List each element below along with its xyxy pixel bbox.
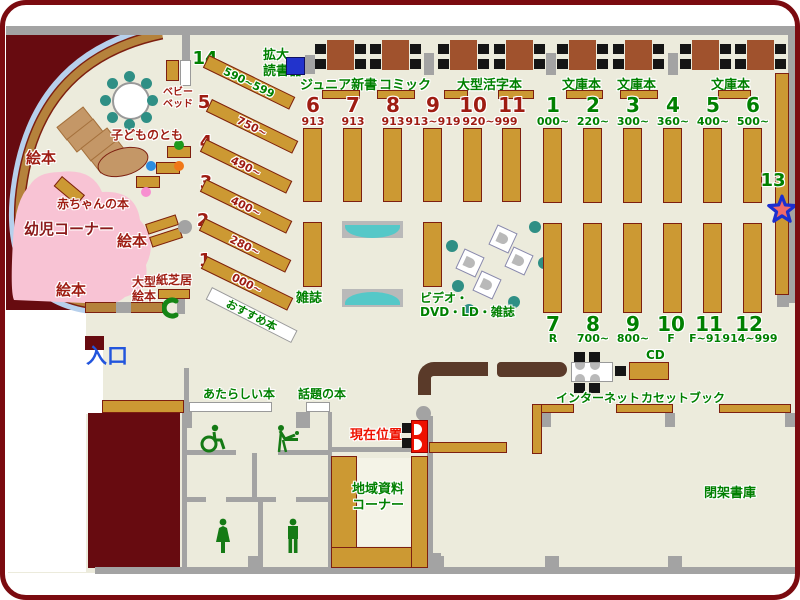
service-counter bbox=[418, 362, 488, 395]
reading-table bbox=[327, 40, 354, 70]
baby-change-icon bbox=[274, 424, 302, 454]
stack-number: 7 bbox=[332, 95, 374, 115]
shelf bbox=[532, 404, 542, 454]
pillar bbox=[424, 53, 434, 75]
pillar bbox=[546, 53, 556, 75]
cushion-blue bbox=[146, 161, 156, 171]
bookshelf bbox=[663, 223, 682, 313]
service-counter bbox=[497, 362, 567, 377]
stool bbox=[124, 71, 135, 82]
carrel-seat bbox=[495, 232, 509, 246]
bookshelf bbox=[343, 128, 362, 202]
phone-icon bbox=[162, 297, 180, 319]
video-shelf bbox=[423, 222, 442, 287]
topical-books-label: 話題の本 bbox=[298, 387, 346, 401]
chair bbox=[494, 44, 505, 54]
bookshelf bbox=[623, 128, 642, 203]
children-door bbox=[116, 302, 131, 313]
bookshelf bbox=[543, 223, 562, 313]
kodomo-no-tomo-label: 子どものとも bbox=[111, 128, 183, 142]
bookshelf bbox=[583, 128, 602, 203]
new-books-label: あたらしい本 bbox=[203, 387, 275, 401]
chair bbox=[589, 352, 600, 362]
magazines-label: 雑誌 bbox=[296, 291, 322, 307]
reading-table bbox=[747, 40, 774, 70]
bookshelf bbox=[743, 128, 762, 203]
pillar bbox=[668, 53, 678, 75]
bookshelf bbox=[383, 128, 402, 202]
chair bbox=[615, 366, 626, 376]
bookshelf bbox=[743, 223, 762, 313]
chair bbox=[478, 59, 489, 69]
stack-number: 12 bbox=[728, 314, 770, 334]
chair bbox=[775, 44, 786, 54]
baby-books-label: 赤ちゃんの本 bbox=[57, 197, 129, 211]
toilet-wall bbox=[226, 497, 276, 502]
local-materials-shelf bbox=[411, 456, 428, 568]
wall-pillar bbox=[668, 556, 682, 568]
stack-number: 10 bbox=[452, 95, 494, 115]
wall-top bbox=[6, 26, 795, 35]
baby-bed-label: ベビー ベッド bbox=[163, 87, 193, 111]
chair bbox=[720, 44, 731, 54]
wall-stub bbox=[541, 413, 551, 427]
stack-number: 6 bbox=[732, 95, 774, 115]
shelf bbox=[719, 404, 791, 413]
stack-number: 5 bbox=[692, 95, 734, 115]
stack-number: 11 bbox=[688, 314, 730, 334]
wall-stub bbox=[785, 413, 795, 427]
toilet-wall bbox=[296, 497, 332, 502]
bookshelf bbox=[423, 128, 442, 202]
reading-table bbox=[506, 40, 533, 70]
chair bbox=[315, 44, 326, 54]
wall-bottom bbox=[95, 567, 795, 574]
chair bbox=[680, 44, 691, 54]
stack-range: 913 bbox=[292, 116, 334, 127]
wall-local-top bbox=[332, 447, 411, 452]
chair bbox=[410, 59, 421, 69]
man-icon bbox=[283, 518, 303, 554]
wheelchair-icon bbox=[196, 424, 226, 454]
kamishibai-label: 紙芝居 bbox=[156, 273, 192, 287]
current-location-label: 現在位置 bbox=[350, 428, 402, 444]
chair bbox=[597, 59, 608, 69]
stool bbox=[147, 95, 158, 106]
chair bbox=[557, 59, 568, 69]
chair bbox=[402, 423, 411, 433]
carrel-chair bbox=[529, 221, 541, 233]
chair bbox=[613, 59, 624, 69]
carrel-seat bbox=[462, 256, 476, 270]
chair bbox=[315, 59, 326, 69]
chair bbox=[653, 59, 664, 69]
stack-number: 7 bbox=[532, 314, 574, 334]
chair bbox=[494, 59, 505, 69]
cushion-orange bbox=[174, 161, 184, 171]
toilet-wall bbox=[252, 453, 257, 500]
chair bbox=[735, 59, 746, 69]
pillar-dot bbox=[178, 220, 192, 234]
stack-number: 4 bbox=[652, 95, 694, 115]
library-floor-map: 拡大 読書器 ジュニア新書 コミック 大型活字本 文庫本 文庫本 文庫本 6 7… bbox=[0, 0, 800, 600]
stool bbox=[107, 78, 118, 89]
toilet-wall bbox=[258, 499, 263, 568]
new-books-shelf bbox=[189, 402, 272, 412]
chair bbox=[438, 59, 449, 69]
maroon-block bbox=[88, 413, 180, 568]
stack-number: 8 bbox=[372, 95, 414, 115]
toilet-wall-left bbox=[182, 412, 187, 568]
carrel-chair bbox=[446, 240, 458, 252]
reading-table bbox=[625, 40, 652, 70]
cd-label: CD bbox=[646, 348, 665, 362]
ehon-label: 絵本 bbox=[26, 149, 56, 167]
stack-range: 500~ bbox=[729, 116, 777, 127]
chair bbox=[438, 44, 449, 54]
ehon-label: 絵本 bbox=[117, 232, 147, 250]
seat bbox=[590, 374, 600, 381]
bookshelf bbox=[703, 128, 722, 203]
stool bbox=[107, 112, 118, 123]
baby-bed bbox=[180, 60, 191, 86]
cd-shelf bbox=[629, 362, 669, 380]
bookshelf bbox=[463, 128, 482, 202]
ogata-ehon-label: 大型 絵本 bbox=[132, 275, 156, 304]
wall-stub bbox=[777, 295, 789, 307]
chair bbox=[402, 438, 411, 448]
bookshelf bbox=[703, 223, 722, 313]
chair bbox=[370, 44, 381, 54]
video-dvd-label: ビデオ・ DVD・LD・雑誌 bbox=[420, 291, 515, 320]
stool bbox=[141, 112, 152, 123]
magazine-shelf bbox=[303, 222, 322, 287]
chair bbox=[355, 44, 366, 54]
wall-stub bbox=[665, 413, 675, 427]
chair bbox=[534, 59, 545, 69]
baby-bed-shelf bbox=[166, 60, 179, 81]
bookshelf bbox=[583, 223, 602, 313]
wall-stub bbox=[427, 553, 441, 567]
stack-number-13: 13 bbox=[752, 172, 794, 190]
chair bbox=[720, 59, 731, 69]
stack-number: 9 bbox=[612, 314, 654, 334]
bookshelf bbox=[502, 128, 521, 202]
topical-books-shelf bbox=[306, 402, 330, 412]
cassette-shelf bbox=[616, 404, 673, 413]
chair bbox=[735, 44, 746, 54]
chair bbox=[370, 59, 381, 69]
stack-number: 11 bbox=[491, 95, 533, 115]
star-marker-icon bbox=[766, 194, 798, 226]
chair bbox=[574, 352, 585, 362]
bookshelf bbox=[623, 223, 642, 313]
reading-table bbox=[569, 40, 596, 70]
woman-icon bbox=[212, 518, 234, 554]
seat bbox=[575, 374, 585, 381]
reading-table bbox=[692, 40, 719, 70]
chair bbox=[653, 44, 664, 54]
ehon-label: 絵本 bbox=[56, 281, 86, 299]
bookshelf bbox=[543, 128, 562, 203]
chair bbox=[680, 59, 691, 69]
chair bbox=[597, 44, 608, 54]
local-materials-label: 地域資料 コーナー bbox=[352, 482, 404, 513]
shelf-band bbox=[102, 400, 184, 413]
entrance-label: 入口 bbox=[86, 344, 128, 369]
stack-number: 3 bbox=[612, 95, 654, 115]
chair bbox=[534, 44, 545, 54]
stack-range: 920~999 bbox=[450, 116, 530, 127]
pillar-dot bbox=[416, 406, 431, 421]
carrel-seat bbox=[479, 278, 493, 292]
chair bbox=[410, 44, 421, 54]
carrel-seat bbox=[511, 254, 525, 268]
stack-number: 2 bbox=[572, 95, 614, 115]
stack-number: 1 bbox=[532, 95, 574, 115]
infant-corner-label: 幼児コーナー bbox=[24, 220, 114, 238]
wall-right bbox=[788, 26, 795, 303]
reading-table bbox=[382, 40, 409, 70]
stool bbox=[100, 95, 111, 106]
shelf bbox=[429, 442, 507, 453]
chair bbox=[355, 59, 366, 69]
chair bbox=[557, 44, 568, 54]
toilet-wall bbox=[184, 497, 206, 502]
stack-range: 913 bbox=[332, 116, 374, 127]
reading-table bbox=[450, 40, 477, 70]
chair bbox=[478, 44, 489, 54]
bookshelf bbox=[663, 128, 682, 203]
stack-number: 6 bbox=[292, 95, 334, 115]
stack-number: 9 bbox=[412, 95, 454, 115]
stack-range: 914~999 bbox=[718, 333, 782, 344]
chair bbox=[775, 59, 786, 69]
magnifier-device-icon bbox=[286, 57, 305, 75]
step-shelf bbox=[136, 176, 160, 188]
stack-number: 8 bbox=[572, 314, 614, 334]
cushion-pink bbox=[141, 187, 151, 197]
wall-pillar bbox=[545, 556, 559, 568]
closed-stacks-label: 閉架書庫 bbox=[704, 486, 756, 502]
stack-number: 10 bbox=[650, 314, 692, 334]
stool bbox=[141, 78, 152, 89]
device-stand bbox=[305, 55, 315, 74]
bookshelf bbox=[303, 128, 322, 202]
chair bbox=[613, 44, 624, 54]
